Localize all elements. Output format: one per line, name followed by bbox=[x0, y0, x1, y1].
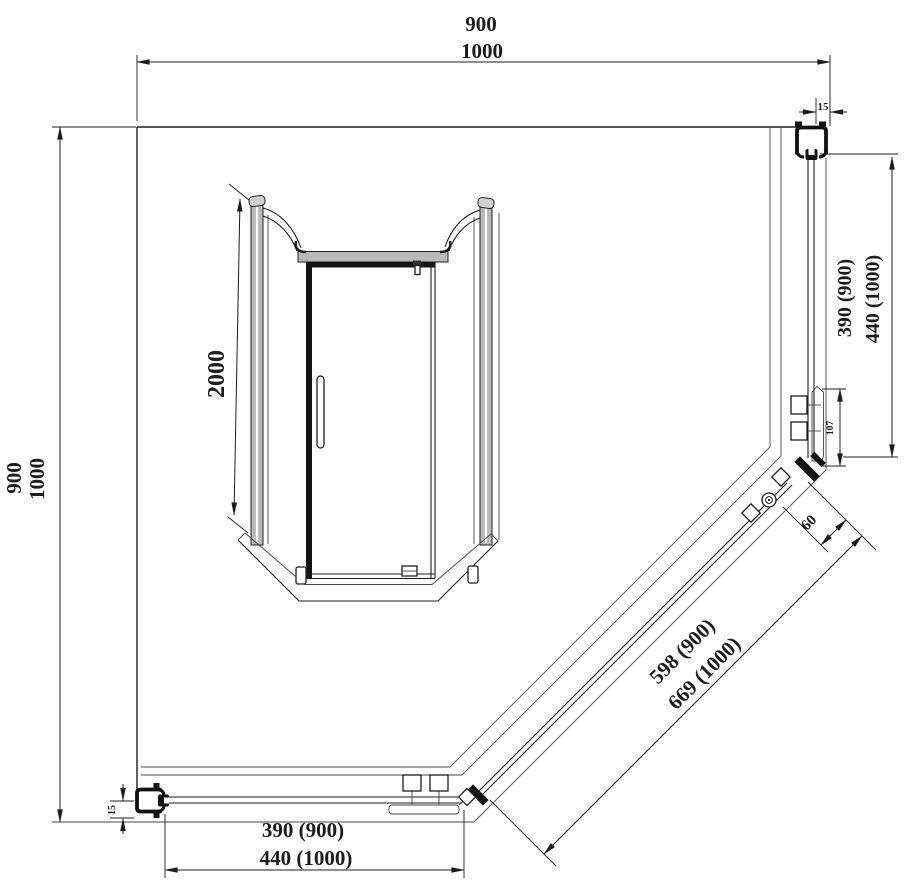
elevation-view: 2000 bbox=[204, 184, 499, 601]
tray-corner-foot bbox=[468, 566, 478, 583]
elevation-header-bar bbox=[296, 241, 451, 262]
door-hinge-bottom-elevation bbox=[402, 566, 417, 576]
technical-drawing-page: 900 1000 900 1000 390 (900) 440 (1000) 3… bbox=[0, 0, 915, 890]
clamp-block bbox=[791, 422, 807, 440]
fixed-panel-right-glass bbox=[808, 152, 814, 458]
door-knob bbox=[762, 493, 776, 507]
dim-label: 900 bbox=[465, 12, 497, 36]
clamp-block bbox=[430, 775, 448, 791]
wall-lines bbox=[137, 127, 797, 812]
tray-corner-foot bbox=[296, 567, 306, 584]
clamp-bracket-bottom bbox=[389, 805, 459, 814]
dim-label: 440 (1000) bbox=[862, 255, 884, 343]
profile-cap bbox=[477, 197, 494, 209]
dim-label: 1000 bbox=[461, 39, 503, 63]
elevation-side-profiles bbox=[248, 195, 499, 545]
dimension-wall-profile-top: 15 bbox=[799, 98, 847, 124]
dimension-wall-profile-bottom: 15 bbox=[107, 784, 134, 834]
door-hinge-top bbox=[772, 468, 790, 486]
dim-label: 15 bbox=[107, 805, 118, 815]
glass-clamps-right bbox=[791, 387, 824, 462]
dimension-door-height: 2000 bbox=[204, 184, 249, 533]
dim-label: 390 (900) bbox=[262, 818, 344, 842]
drawing-canvas: 900 1000 900 1000 390 (900) 440 (1000) 3… bbox=[0, 0, 915, 890]
dim-label: 15 bbox=[818, 101, 830, 113]
dimension-right-panel: 390 (900) 440 (1000) bbox=[820, 154, 898, 457]
elevation-shower-tray bbox=[238, 533, 498, 601]
dim-label: 390 (900) bbox=[834, 259, 856, 337]
dimension-bottom-panel: 390 (900) 440 (1000) bbox=[165, 810, 464, 878]
dimension-overall-width: 900 1000 bbox=[137, 12, 830, 126]
door-handle bbox=[317, 376, 324, 448]
dim-label: 60 bbox=[798, 512, 820, 534]
diagonal-door bbox=[459, 452, 826, 806]
plan-view: 900 1000 900 1000 390 (900) 440 (1000) 3… bbox=[2, 12, 898, 878]
dim-label: 107 bbox=[826, 421, 836, 436]
dimension-door-diagonal: 598 (900) 669 (1000) bbox=[490, 482, 876, 866]
wall-profile-bottom-left bbox=[137, 783, 169, 818]
dimension-overall-depth: 900 1000 bbox=[2, 127, 136, 822]
dim-label: 440 (1000) bbox=[260, 846, 353, 870]
clamp-block bbox=[403, 775, 421, 791]
dim-label: 1000 bbox=[25, 458, 49, 500]
fixed-panel-bottom-glass bbox=[162, 797, 462, 803]
dim-label: 900 bbox=[2, 462, 26, 494]
dimension-corner-post: 60 bbox=[783, 507, 846, 552]
profile-cap bbox=[248, 195, 265, 207]
dim-label: 2000 bbox=[204, 350, 230, 398]
elevation-door bbox=[306, 261, 435, 579]
clamp-block bbox=[791, 396, 807, 414]
